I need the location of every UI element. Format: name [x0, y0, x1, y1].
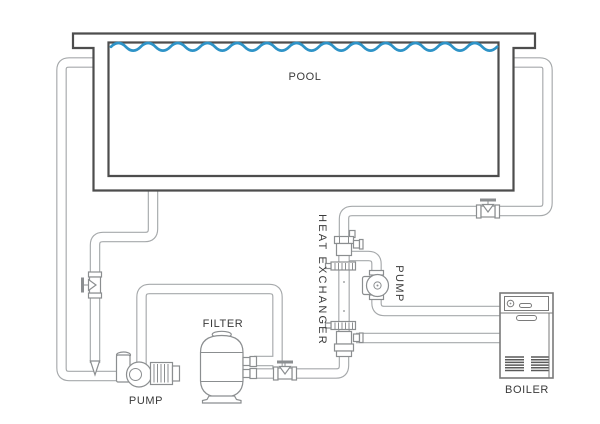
filter-port-upper	[243, 358, 250, 366]
drain-valve-handle	[81, 278, 84, 293]
filter-port-lower	[243, 370, 250, 378]
sand-filter	[201, 331, 257, 403]
pump-motor-cap	[173, 366, 180, 381]
pool-label: POOL	[289, 71, 322, 83]
pool-heating-diagram: POOL FILTER PUMP HEAT EXCHANGER PUMP BOI…	[0, 0, 600, 424]
filter-label: FILTER	[203, 318, 244, 330]
he-bottom-union-flange	[335, 344, 354, 351]
main-pump-label: PUMP	[129, 395, 163, 407]
he-bottom-port	[354, 334, 360, 342]
filter-tank	[201, 336, 244, 398]
boiler	[500, 293, 553, 378]
heat-exchanger-label: HEAT EXCHANGER	[316, 214, 328, 346]
pool-return-pipe	[344, 63, 548, 245]
main-pump	[117, 352, 180, 387]
he-top-union-flange	[335, 237, 354, 244]
pump-volute	[127, 362, 152, 387]
diagram-canvas: POOL FILTER PUMP HEAT EXCHANGER PUMP BOI…	[0, 0, 600, 424]
return-valve	[477, 199, 500, 219]
water-line	[111, 43, 497, 51]
circulation-pump	[363, 271, 389, 300]
he-top-port	[354, 241, 360, 249]
drain-valve	[81, 272, 102, 298]
he-top-header	[337, 244, 352, 256]
return-valve-handle	[480, 199, 496, 202]
pool	[73, 34, 535, 191]
circulation-pump-label: PUMP	[393, 265, 405, 302]
boiler-label: BOILER	[505, 384, 549, 396]
filter-valve-handle	[277, 361, 293, 364]
he-bottom-header	[337, 332, 352, 345]
filter-base	[203, 396, 242, 403]
